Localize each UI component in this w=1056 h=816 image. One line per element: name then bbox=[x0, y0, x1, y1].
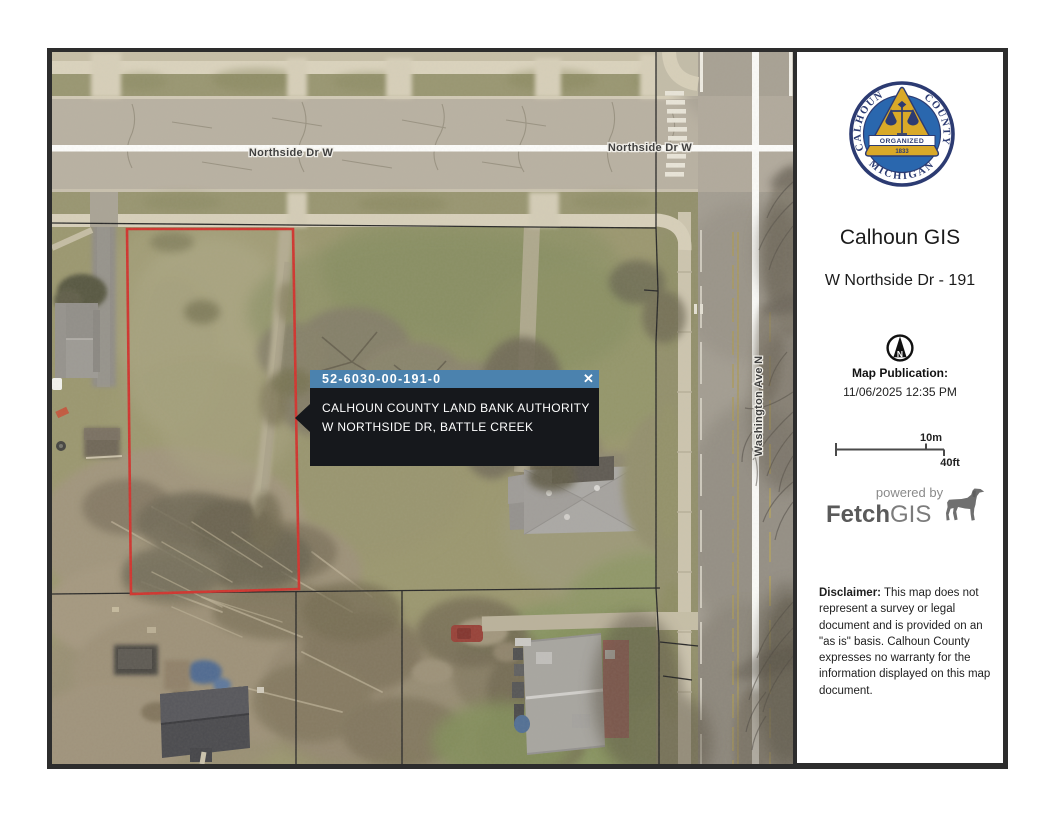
svg-text:N: N bbox=[897, 349, 903, 359]
svg-text:10m: 10m bbox=[920, 432, 942, 444]
svg-text:40ft: 40ft bbox=[940, 457, 960, 469]
svg-text:1833: 1833 bbox=[895, 149, 909, 155]
svg-text:ORGANIZED: ORGANIZED bbox=[880, 138, 924, 145]
